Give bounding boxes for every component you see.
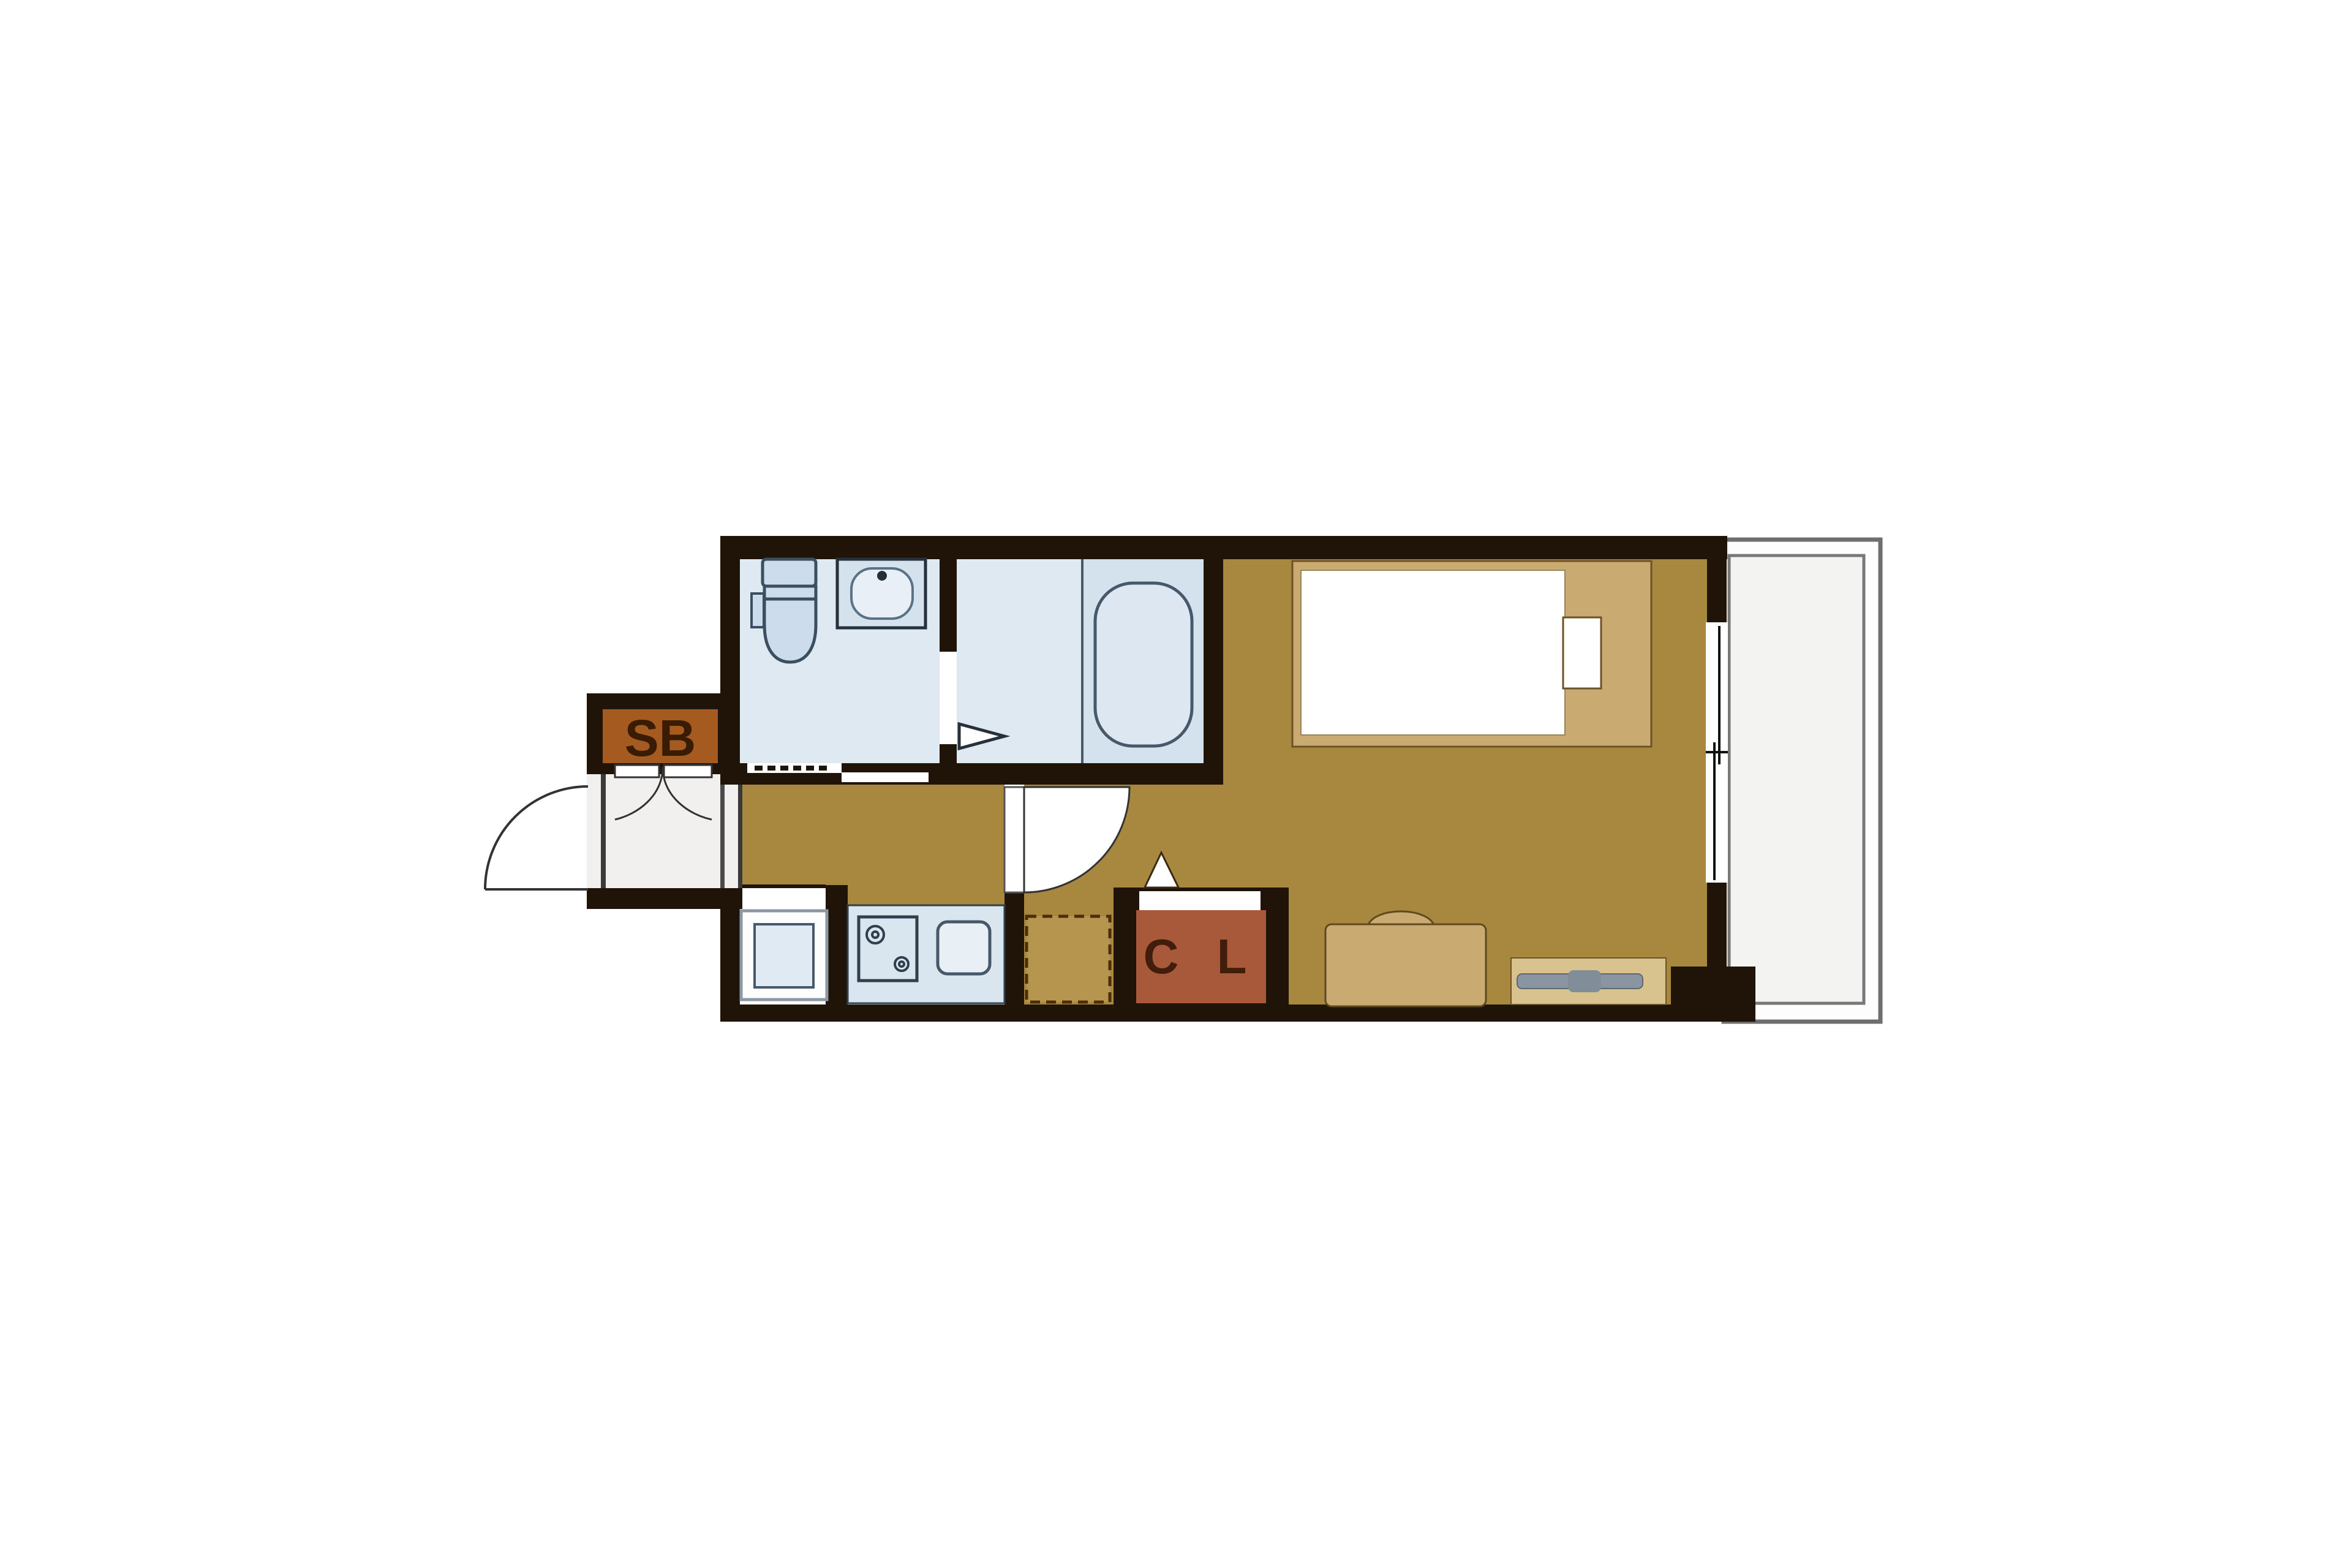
- svg-text:SB: SB: [625, 709, 696, 767]
- svg-text:C L: C L: [1144, 929, 1259, 984]
